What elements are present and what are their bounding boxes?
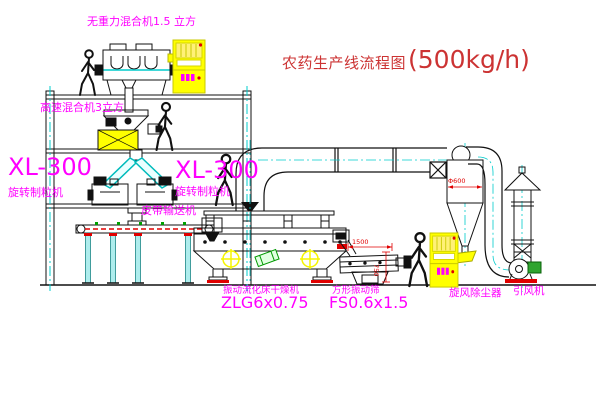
diagram-title-capacity: (500kg/h)	[408, 45, 530, 74]
dimension-cyclone-diameter: Φ600	[448, 178, 466, 185]
label-high-speed-mixer: 高速混合机3立方	[40, 102, 124, 113]
exhaust-duct	[236, 148, 447, 211]
conveyor-legs	[82, 233, 194, 283]
label-dryer-model: ZLG6x0.75	[221, 295, 309, 311]
control-cabinet-1	[173, 40, 205, 93]
diagram-title: 农药生产线流程图 (500kg/h)	[282, 45, 530, 74]
high-speed-mixer-drawing	[98, 110, 162, 150]
label-granulator-right-name: 旋转制粒机	[175, 186, 230, 197]
label-sieve-model: FS0.6x1.5	[329, 295, 408, 311]
dimension-sieve-length: 1500	[352, 239, 369, 246]
label-granulator-left-name: 旋转制粒机	[8, 187, 63, 198]
label-granulator-left-model: XL-300	[8, 155, 92, 179]
label-cyclone: 旋风除尘器	[449, 288, 502, 299]
granulator-drawings	[88, 177, 177, 205]
label-gravity-free-mixer: 无重力混合机1.5 立方	[87, 16, 196, 27]
label-fan: 引风机	[513, 286, 545, 297]
person-icon	[80, 50, 95, 95]
label-belt-conveyor: 皮带输送机	[141, 205, 196, 216]
dryer-feet	[207, 269, 333, 283]
exhaust-stack	[505, 167, 540, 258]
belt-conveyor-drawing	[76, 222, 214, 283]
diagram-title-text: 农药生产线流程图	[282, 52, 406, 73]
dimension-sieve-height: 750	[373, 264, 380, 276]
vibration-motor-icon	[255, 250, 279, 267]
flow-diagram-canvas: 农药生产线流程图 (500kg/h) 无重力混合机1.5 立方 高速混合机3立方…	[0, 0, 600, 403]
induced-draft-fan-drawing	[505, 252, 541, 283]
person-icon	[409, 233, 427, 286]
fluid-bed-dryer-drawing	[194, 211, 346, 283]
control-cabinet-2	[430, 233, 458, 287]
label-granulator-right-model: XL-300	[175, 158, 259, 182]
